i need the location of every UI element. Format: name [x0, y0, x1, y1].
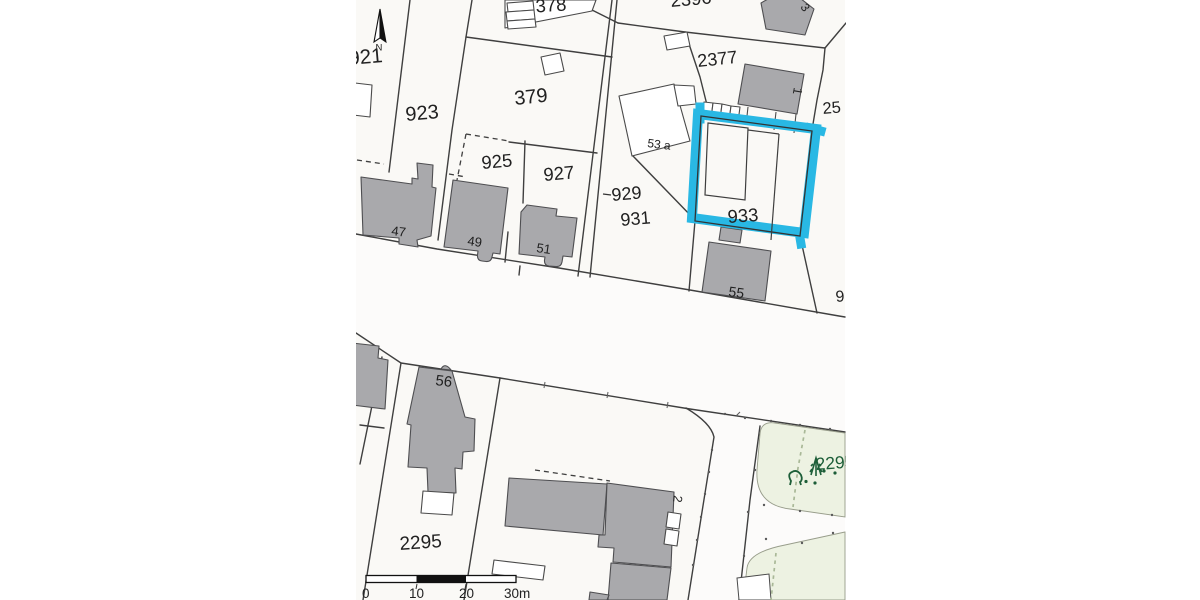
svg-text:25: 25	[822, 98, 842, 118]
svg-text:10: 10	[409, 586, 424, 600]
svg-text:2295: 2295	[399, 531, 443, 555]
svg-text:56: 56	[435, 372, 454, 391]
svg-text:923: 923	[405, 101, 440, 126]
svg-text:51: 51	[536, 240, 552, 257]
svg-text:925: 925	[481, 149, 514, 173]
svg-text:0: 0	[362, 586, 370, 600]
svg-text:2377: 2377	[696, 47, 738, 71]
svg-text:9: 9	[835, 288, 845, 306]
svg-text:927: 927	[543, 161, 576, 185]
svg-text:929: 929	[611, 182, 643, 205]
svg-text:931: 931	[620, 207, 652, 230]
svg-text:47: 47	[391, 223, 407, 240]
svg-text:53 a: 53 a	[647, 136, 672, 153]
svg-text:379: 379	[513, 85, 548, 110]
svg-text:20: 20	[459, 586, 474, 600]
svg-text:49: 49	[467, 233, 483, 250]
svg-text:30m: 30m	[504, 586, 530, 600]
svg-text:378: 378	[535, 0, 567, 16]
svg-text:55: 55	[728, 283, 746, 301]
svg-text:933: 933	[727, 204, 759, 227]
